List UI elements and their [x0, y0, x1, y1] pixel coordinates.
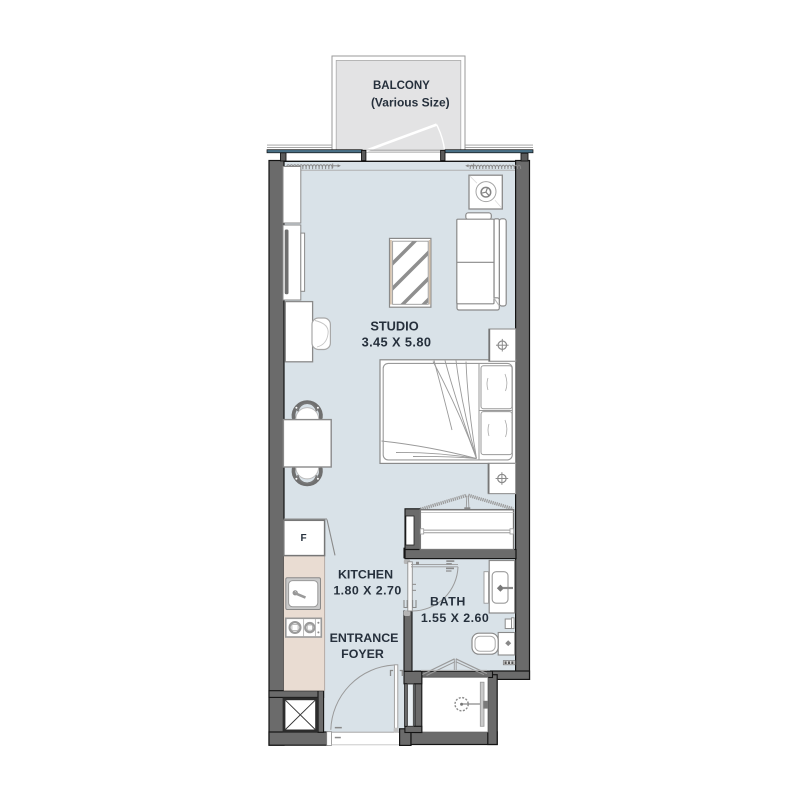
svg-text:BATH: BATH — [430, 595, 466, 609]
svg-text:1.80 X 2.70: 1.80 X 2.70 — [333, 584, 401, 598]
svg-text:FOYER: FOYER — [341, 647, 384, 661]
svg-text:STUDIO: STUDIO — [370, 318, 418, 333]
svg-text:ENTRANCE: ENTRANCE — [330, 631, 399, 645]
svg-text:(Various Size): (Various Size) — [371, 95, 450, 109]
svg-text:KITCHEN: KITCHEN — [338, 568, 393, 582]
svg-text:BALCONY: BALCONY — [373, 80, 430, 92]
svg-text:F: F — [300, 533, 306, 544]
svg-text:1.55 X 2.60: 1.55 X 2.60 — [421, 611, 489, 625]
svg-text:3.45 X 5.80: 3.45 X 5.80 — [362, 334, 432, 349]
